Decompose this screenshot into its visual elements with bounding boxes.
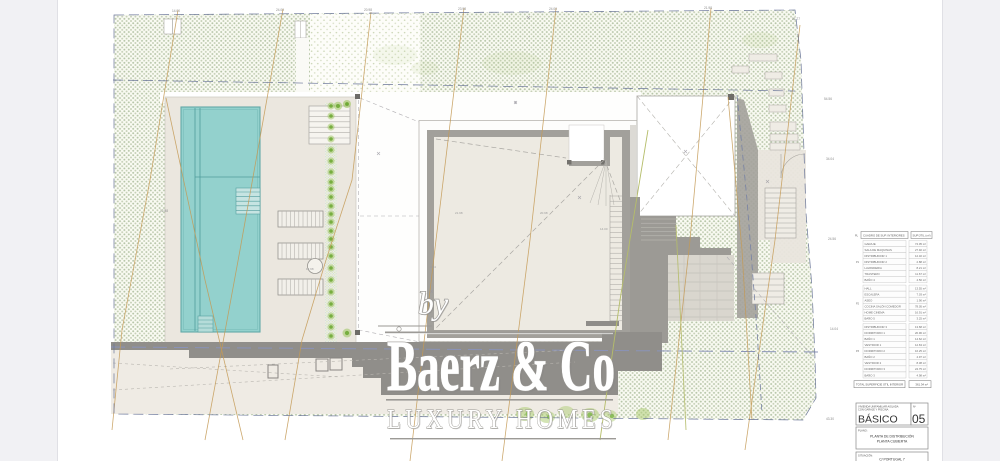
svg-text:PLANTA DE DISTRIBUCIÓN: PLANTA DE DISTRIBUCIÓN: [870, 434, 914, 439]
svg-text:14.00: 14.00: [600, 227, 608, 231]
svg-text:DISTRIBUIDOR 1: DISTRIBUIDOR 1: [865, 254, 888, 258]
svg-text:13.68 m²: 13.68 m²: [915, 325, 926, 329]
svg-text:PL: PL: [855, 234, 859, 237]
svg-text:COCINA SALÓN COMEDOR: COCINA SALÓN COMEDOR: [865, 304, 901, 309]
svg-text:4.04: 4.04: [430, 265, 436, 269]
svg-text:34.04: 34.04: [826, 157, 834, 161]
svg-text:TOTAL SUPERFICIE ÚTIL INTERIOR: TOTAL SUPERFICIE ÚTIL INTERIOR: [856, 382, 903, 387]
svg-text:DORMITORIO 2: DORMITORIO 2: [865, 349, 886, 353]
svg-text:24.00: 24.00: [276, 8, 284, 12]
svg-text:GARAJE: GARAJE: [865, 242, 876, 246]
svg-text:2.88 m²: 2.88 m²: [917, 260, 927, 264]
svg-text:BAÑO 5: BAÑO 5: [865, 316, 876, 321]
svg-text:12.98: 12.98: [160, 209, 168, 213]
svg-text:23.98: 23.98: [458, 7, 466, 11]
svg-text:54.56: 54.56: [824, 97, 832, 101]
svg-text:CON GARAJE Y PISCINA: CON GARAJE Y PISCINA: [858, 408, 889, 412]
svg-text:12.32 m²: 12.32 m²: [915, 254, 926, 258]
svg-text:27.92 m²: 27.92 m²: [915, 248, 926, 252]
svg-text:BAÑO 1: BAÑO 1: [865, 336, 876, 341]
svg-text:05: 05: [912, 412, 926, 426]
svg-text:16.25 m²: 16.25 m²: [915, 349, 926, 353]
svg-text:DISTRIBUIDOR 3: DISTRIBUIDOR 3: [865, 325, 888, 329]
svg-text:PLANTA CUBIERTA: PLANTA CUBIERTA: [877, 440, 908, 444]
svg-text:14.04: 14.04: [830, 327, 838, 331]
svg-text:by: by: [418, 285, 449, 321]
svg-text:20.98: 20.98: [364, 8, 372, 12]
svg-text:DISTRIBUIDOR 2: DISTRIBUIDOR 2: [865, 260, 888, 264]
svg-text:BAÑO 3: BAÑO 3: [865, 372, 876, 377]
svg-text:VESTIDOR 2: VESTIDOR 2: [865, 361, 882, 365]
svg-text:14.00: 14.00: [172, 9, 180, 13]
svg-text:P2: P2: [856, 302, 860, 305]
svg-text:11.67 m²: 11.67 m²: [915, 272, 926, 276]
svg-text:24.56: 24.56: [828, 237, 836, 241]
svg-text:4.97 m²: 4.97 m²: [917, 355, 927, 359]
svg-text:1.90 m²: 1.90 m²: [917, 298, 927, 302]
svg-text:21.98: 21.98: [704, 6, 712, 10]
svg-text:24.75 m²: 24.75 m²: [915, 367, 926, 371]
svg-text:P3: P3: [856, 350, 860, 353]
svg-text:361.34 m²: 361.34 m²: [915, 383, 928, 387]
svg-text:24.00: 24.00: [549, 7, 557, 11]
svg-text:8.38 m²: 8.38 m²: [917, 361, 927, 365]
svg-text:4.50 m²: 4.50 m²: [917, 278, 927, 282]
svg-text:12.98: 12.98: [306, 267, 314, 271]
svg-text:PLANO:: PLANO:: [858, 428, 868, 432]
svg-text:LAVANDERIA: LAVANDERIA: [865, 266, 882, 270]
svg-text:21.77: 21.77: [792, 17, 800, 21]
svg-text:VESTIDOR 1: VESTIDOR 1: [865, 343, 882, 347]
svg-text:16.91 m²: 16.91 m²: [915, 311, 926, 315]
svg-text:78.05 m²: 78.05 m²: [915, 305, 926, 309]
svg-text:BAÑO 4: BAÑO 4: [865, 277, 876, 282]
svg-text:DORMITORIO 3: DORMITORIO 3: [865, 367, 886, 371]
svg-text:SALA DE MAQUINAS: SALA DE MAQUINAS: [865, 248, 892, 252]
svg-text:4.98 m²: 4.98 m²: [917, 373, 927, 377]
svg-text:LUXURY HOMES: LUXURY HOMES: [387, 404, 617, 434]
svg-text:BAÑO 2: BAÑO 2: [865, 354, 876, 359]
svg-text:HOME CINEMA: HOME CINEMA: [865, 311, 885, 315]
svg-text:ESCALERA: ESCALERA: [865, 292, 880, 296]
svg-text:Nº: Nº: [913, 405, 916, 409]
svg-text:3.25 m²: 3.25 m²: [917, 317, 927, 321]
svg-text:DORMITORIO 1: DORMITORIO 1: [865, 331, 886, 335]
svg-text:43.30: 43.30: [826, 417, 834, 421]
svg-text:TRASTERO: TRASTERO: [865, 272, 881, 276]
svg-text:14.62 m²: 14.62 m²: [915, 337, 926, 341]
svg-text:74.05 m²: 74.05 m²: [915, 242, 926, 246]
svg-text:C/ PORTUGAL 7: C/ PORTUGAL 7: [879, 458, 905, 461]
svg-text:20.96 m²: 20.96 m²: [915, 331, 926, 335]
svg-text:21.98: 21.98: [455, 211, 463, 215]
svg-text:HALL: HALL: [865, 286, 872, 290]
svg-text:P1: P1: [856, 261, 860, 264]
svg-text:13.55 m²: 13.55 m²: [915, 286, 926, 290]
svg-text:CUADRO DE SUP. INTERIORES: CUADRO DE SUP. INTERIORES: [863, 233, 905, 237]
svg-text:7.03 m²: 7.03 m²: [917, 292, 927, 296]
svg-text:BÁSICO: BÁSICO: [858, 413, 898, 426]
svg-text:12.63 m²: 12.63 m²: [915, 343, 926, 347]
svg-text:8.21 m²: 8.21 m²: [917, 266, 927, 270]
svg-text:ASEO: ASEO: [865, 298, 874, 302]
svg-text:Baerz & Co: Baerz & Co: [387, 326, 615, 406]
svg-text:SUP.ÚTIL (m²): SUP.ÚTIL (m²): [913, 232, 931, 237]
svg-text:20.98: 20.98: [540, 211, 548, 215]
